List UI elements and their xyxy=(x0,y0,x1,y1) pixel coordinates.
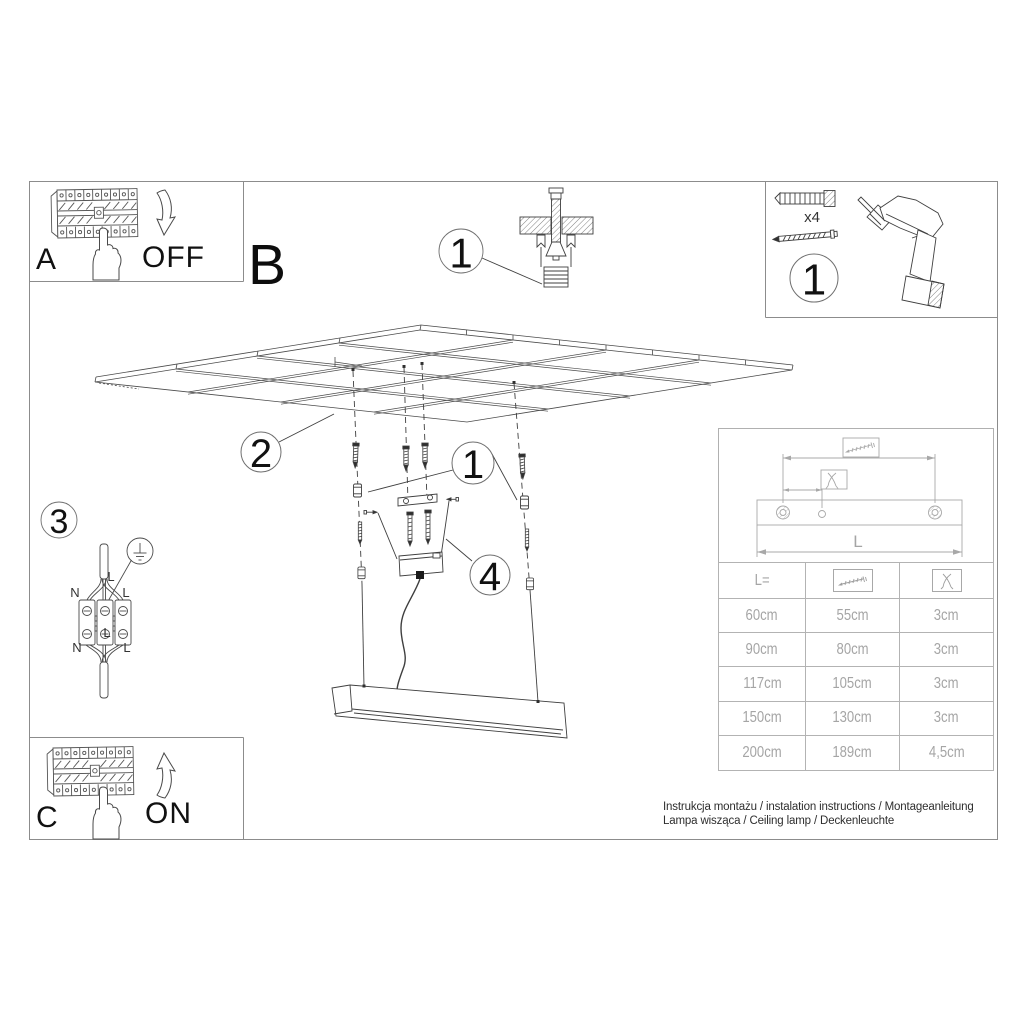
callout-number: 1 xyxy=(449,230,472,277)
step-b-label: B xyxy=(248,232,286,298)
wire-label-l: L xyxy=(107,569,114,584)
instruction-sheet: x4 1 xyxy=(0,0,1024,1024)
screw-icon xyxy=(403,446,409,471)
table-cell: 3cm xyxy=(900,633,993,667)
breaker-icon xyxy=(47,747,134,796)
wall-plug-icon xyxy=(775,191,835,207)
wire-label-l: L xyxy=(123,640,130,655)
suspension-wire-left xyxy=(362,584,364,687)
screw-icon xyxy=(519,454,526,479)
wall-plug-icon xyxy=(354,484,362,497)
table-cell: 4,5cm xyxy=(900,736,993,770)
screw-icon xyxy=(773,230,838,244)
screw-icon xyxy=(422,443,428,468)
table-cell: 90cm xyxy=(719,633,806,667)
screw-icon xyxy=(833,569,873,592)
wire-label-n: N xyxy=(72,640,81,655)
canopy-box xyxy=(399,552,443,579)
callout-number: 3 xyxy=(50,503,69,541)
pliers-icon xyxy=(932,569,962,592)
suspension-assembly xyxy=(352,364,538,702)
table-cell: 150cm xyxy=(719,702,806,736)
wire-label-l: L xyxy=(122,585,129,600)
drill-icon xyxy=(858,196,944,308)
suspended-ceiling-grid xyxy=(95,325,793,422)
breaker-icon xyxy=(51,189,138,238)
instructions-line-2: Lampa wisząca / Ceiling lamp / Deckenleu… xyxy=(663,814,894,828)
ground-symbol-icon xyxy=(127,538,153,564)
table-header-pliers xyxy=(900,563,993,599)
screw-icon xyxy=(407,512,413,546)
table-header-screw xyxy=(806,563,900,599)
arrow-down-icon xyxy=(157,190,175,235)
side-screw-left xyxy=(364,511,377,515)
hardware-kit-box: x4 1 xyxy=(766,181,999,318)
screw-icon xyxy=(843,438,879,457)
power-off-label: OFF xyxy=(142,241,205,275)
anchors-callout: 1 xyxy=(368,442,517,500)
mounting-bracket xyxy=(364,494,459,691)
table-cell: 117cm xyxy=(719,667,806,701)
screw-icon xyxy=(425,510,431,544)
wire-grip-icon xyxy=(526,578,533,590)
threaded-rod-icon xyxy=(525,529,528,551)
arrow-up-icon xyxy=(157,753,175,798)
canopy-callout: 4 xyxy=(446,539,510,599)
table-cell: 105cm xyxy=(806,667,900,701)
dimension-label: L xyxy=(853,532,862,551)
instructions-line-1: Instrukcja montażu / instalation instruc… xyxy=(663,800,974,814)
power-cable xyxy=(397,579,420,691)
threaded-rod-icon xyxy=(358,522,361,544)
step-a-label: A xyxy=(36,243,56,277)
dimension-diagram: L xyxy=(719,429,994,563)
wiring-diagram: 3 N L N xyxy=(41,502,153,698)
wire-grip-icon xyxy=(358,567,365,579)
pliers-icon xyxy=(821,470,847,489)
diagram-artwork: x4 1 xyxy=(0,0,1024,1024)
length-header-label: L= xyxy=(755,572,770,590)
wall-plug-icon xyxy=(521,496,529,509)
table-cell: 3cm xyxy=(900,667,993,701)
pendant-lamp xyxy=(332,685,567,739)
table-cell: 3cm xyxy=(900,702,993,736)
screw-icon xyxy=(352,443,359,468)
callout-number: 4 xyxy=(479,555,501,599)
table-cell: 55cm xyxy=(806,599,900,633)
table-cell: 3cm xyxy=(900,599,993,633)
anchor-detail-callout: 1 xyxy=(439,229,483,277)
wire-label-l: L xyxy=(103,625,110,640)
hardware-kit-callout: 1 xyxy=(790,254,838,305)
callout-number: 2 xyxy=(250,432,272,476)
anchor-detail: 1 xyxy=(439,188,593,287)
suspension-wire-right xyxy=(530,590,538,702)
ceiling-callout: 2 xyxy=(241,414,334,476)
size-table: L= xyxy=(718,562,994,771)
callout-number: 1 xyxy=(802,256,826,305)
table-cell: 189cm xyxy=(806,736,900,770)
step-c-label: C xyxy=(36,801,58,835)
side-screw-right xyxy=(447,498,459,502)
table-cell: 60cm xyxy=(719,599,806,633)
dowel-qty-label: x4 xyxy=(804,209,820,226)
power-on-label: ON xyxy=(145,797,192,831)
table-cell: 130cm xyxy=(806,702,900,736)
table-cell: 80cm xyxy=(806,633,900,667)
table-cell: 200cm xyxy=(719,736,806,770)
table-header-length: L= xyxy=(719,563,806,599)
wire-label-n: N xyxy=(70,585,79,600)
callout-number: 1 xyxy=(462,443,484,487)
wiring-step-callout: 3 xyxy=(41,502,77,541)
